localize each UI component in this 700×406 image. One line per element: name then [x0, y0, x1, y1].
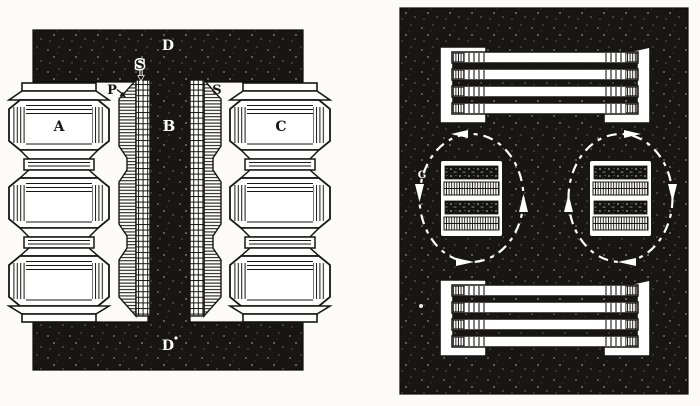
label-primary: P — [107, 83, 117, 98]
figure-right-flux-diagram: G — [400, 8, 688, 394]
label-core-limb: B — [163, 117, 176, 135]
label-yoke-bottom: D — [162, 338, 174, 354]
secondary-winding-strip-left — [136, 80, 150, 316]
coil-block-right — [589, 160, 652, 237]
primary-winding-right — [204, 80, 221, 316]
label-coil-A: A — [53, 119, 66, 135]
coil-block-left — [440, 160, 503, 237]
yoke-bottom-prime-dot — [174, 336, 177, 339]
engraving-canvas: D B A C D S P S — [0, 0, 700, 406]
label-coil-C: C — [275, 119, 286, 135]
secondary-winding-strip-right — [190, 80, 204, 316]
label-flux-mark: G — [418, 170, 427, 181]
label-yoke-top: D — [162, 38, 174, 54]
engraving-transformer-figures: D B A C D S P S — [0, 0, 700, 406]
engraving-speck — [419, 304, 423, 308]
primary-winding-left — [119, 80, 136, 316]
figure-left-shell-transformer: D B A C D S P S — [9, 30, 330, 370]
label-secondary-right: S — [212, 83, 221, 98]
